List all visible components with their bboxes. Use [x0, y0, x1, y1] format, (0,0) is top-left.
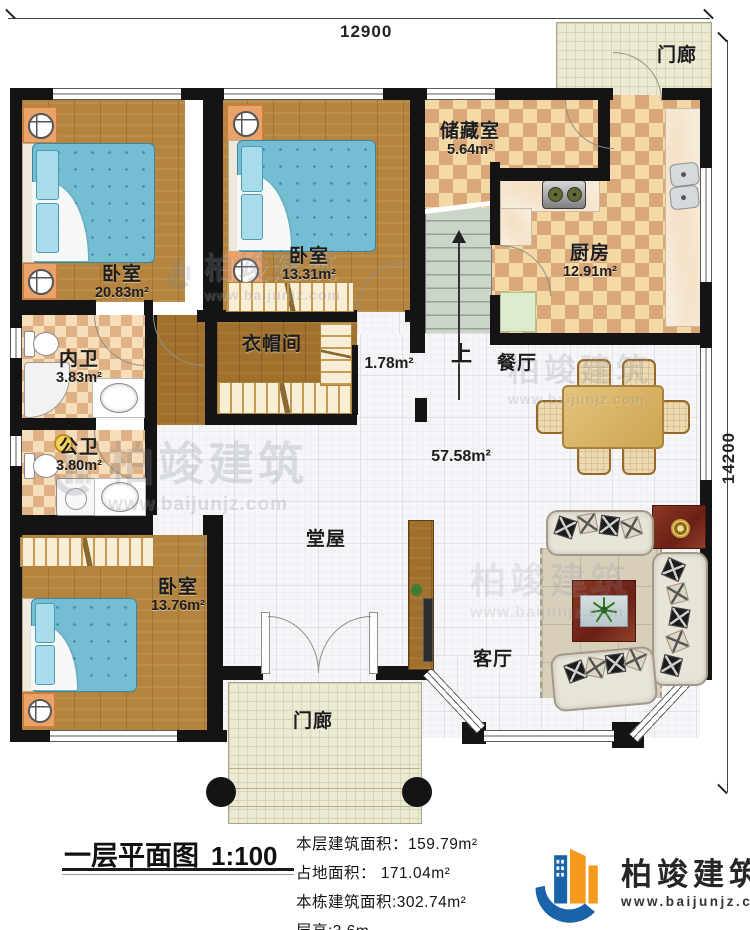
wall-segment	[144, 418, 157, 430]
porch-column	[402, 777, 432, 807]
dimension-tick	[717, 32, 728, 43]
wall-segment	[181, 88, 224, 100]
pillow	[241, 146, 263, 192]
porch-step-line	[228, 806, 420, 807]
porch-column	[206, 777, 236, 807]
stat-storey-height: 层高:3.6m	[296, 919, 477, 930]
stairs-up-arrow-icon	[452, 230, 466, 243]
wall-segment	[203, 100, 223, 312]
room-label-stairs-up: 上	[451, 344, 473, 367]
wall-segment	[490, 168, 610, 181]
room-label-storage: 储藏室5.64m²	[440, 122, 500, 158]
lamp-icon	[233, 111, 259, 137]
window	[10, 328, 22, 358]
stat-total-area: 本栋建筑面积:302.74m²	[296, 890, 477, 912]
bay-window	[484, 730, 614, 742]
wall-segment	[144, 300, 153, 315]
brand-block: 柏竣建筑 www.baijunjz.com	[527, 845, 750, 923]
window	[50, 730, 177, 742]
wardrobe	[226, 282, 354, 312]
room-label-hallway-area: 1.78m²	[364, 356, 413, 373]
window	[700, 348, 712, 480]
top-dimension-line	[8, 18, 710, 19]
pillow	[241, 194, 263, 240]
nightstand	[22, 262, 58, 300]
sofa-pillow	[576, 512, 598, 534]
stairs-direction-line	[458, 242, 460, 400]
lamp-icon	[233, 258, 259, 284]
wall-segment	[205, 322, 217, 422]
wall-segment	[405, 310, 425, 322]
room-label-kitchen: 厨房12.91m²	[563, 244, 617, 280]
plant-icon	[589, 595, 619, 625]
wall-segment	[495, 88, 613, 100]
stat-floor-area: 本层建筑面积：159.79m²	[296, 832, 477, 854]
sofa-pillow	[668, 606, 690, 628]
sink-basin	[101, 482, 139, 512]
brand-website: www.baijunjz.com	[621, 894, 750, 909]
wardrobe	[217, 382, 352, 414]
room-label-main-hall: 堂屋	[306, 530, 346, 551]
wall-segment	[490, 295, 500, 333]
nightstand	[22, 106, 58, 144]
burner-icon	[567, 187, 582, 202]
sofa-pillow	[584, 656, 607, 679]
room-label-shared-bath: 公卫3.80m²	[56, 438, 102, 474]
room-label-porch-bottom: 门廊	[293, 712, 333, 733]
lamp-icon	[28, 699, 52, 723]
wall-segment	[10, 515, 153, 535]
wardrobe	[20, 537, 154, 567]
kitchen-mat	[500, 292, 536, 332]
porch-bottom-floor	[228, 682, 422, 824]
sink-basin	[669, 162, 700, 188]
plan-stats: 本层建筑面积：159.79m² 占地面积： 171.04m² 本栋建筑面积:30…	[296, 832, 477, 930]
tv-screen	[423, 598, 433, 662]
nightstand	[226, 104, 264, 142]
room-label-cloakroom: 衣帽间	[242, 335, 302, 356]
dining-table	[562, 385, 664, 449]
window	[427, 88, 495, 100]
wall-segment	[22, 300, 96, 315]
brand-logo-icon	[527, 845, 611, 923]
pillow	[35, 645, 55, 685]
top-dimension-label: 12900	[340, 22, 392, 42]
wall-segment	[700, 282, 712, 348]
floor-plan-canvas: 12900 14200	[0, 0, 750, 930]
sink-basin	[100, 383, 138, 413]
right-dimension-line	[727, 40, 728, 792]
wall-pilaster	[415, 398, 427, 422]
lamp-icon	[28, 113, 54, 139]
washing-machine	[56, 478, 96, 516]
title-underline	[62, 868, 294, 871]
wall-segment	[10, 358, 22, 436]
pillow	[36, 150, 59, 200]
nightstand	[22, 692, 56, 728]
wall-segment	[10, 730, 50, 742]
sofa-pillow	[599, 515, 620, 536]
coffee-table	[572, 580, 636, 642]
room-label-bedroom-second: 卧室13.31m²	[282, 247, 336, 283]
wall-segment	[145, 315, 157, 515]
speaker-emblem-icon	[671, 519, 690, 538]
wall-segment	[700, 88, 712, 168]
wall-segment	[10, 466, 22, 742]
room-label-living: 客厅	[473, 650, 513, 671]
brand-name: 柏竣建筑	[621, 859, 750, 890]
window	[224, 88, 383, 100]
window	[53, 88, 181, 100]
wall-segment	[207, 535, 223, 742]
wall-segment	[10, 88, 22, 328]
room-label-bedroom-master: 卧室20.83m²	[95, 265, 149, 301]
pillow	[35, 603, 55, 643]
wall-segment	[490, 333, 700, 345]
porch-step-line	[228, 768, 420, 769]
kitchen-counter	[500, 208, 532, 246]
stat-footprint-area: 占地面积： 171.04m²	[296, 861, 477, 883]
room-label-porch-top: 门廊	[657, 46, 697, 67]
tv-cabinet	[652, 505, 706, 549]
title-underline-thin	[62, 874, 294, 875]
window	[10, 436, 22, 466]
sink-basin	[669, 185, 700, 211]
kitchen-counter	[665, 108, 702, 327]
stove	[542, 180, 586, 209]
burner-icon	[548, 187, 563, 202]
room-label-bedroom-third: 卧室13.76m²	[151, 578, 205, 614]
right-dimension-label: 14200	[719, 432, 739, 484]
porch-step-line	[228, 788, 420, 789]
pillow	[36, 203, 59, 253]
window	[700, 168, 712, 282]
wall-segment	[203, 515, 223, 535]
wardrobe	[320, 322, 352, 386]
plant-icon	[411, 584, 422, 596]
lamp-icon	[28, 269, 54, 295]
wall-segment	[217, 666, 263, 680]
wall-segment	[22, 418, 96, 430]
room-label-dining: 餐厅	[497, 354, 537, 375]
room-label-ensuite-bath: 内卫3.83m²	[56, 350, 102, 386]
room-label-main-hall-area: 57.58m²	[431, 448, 491, 465]
